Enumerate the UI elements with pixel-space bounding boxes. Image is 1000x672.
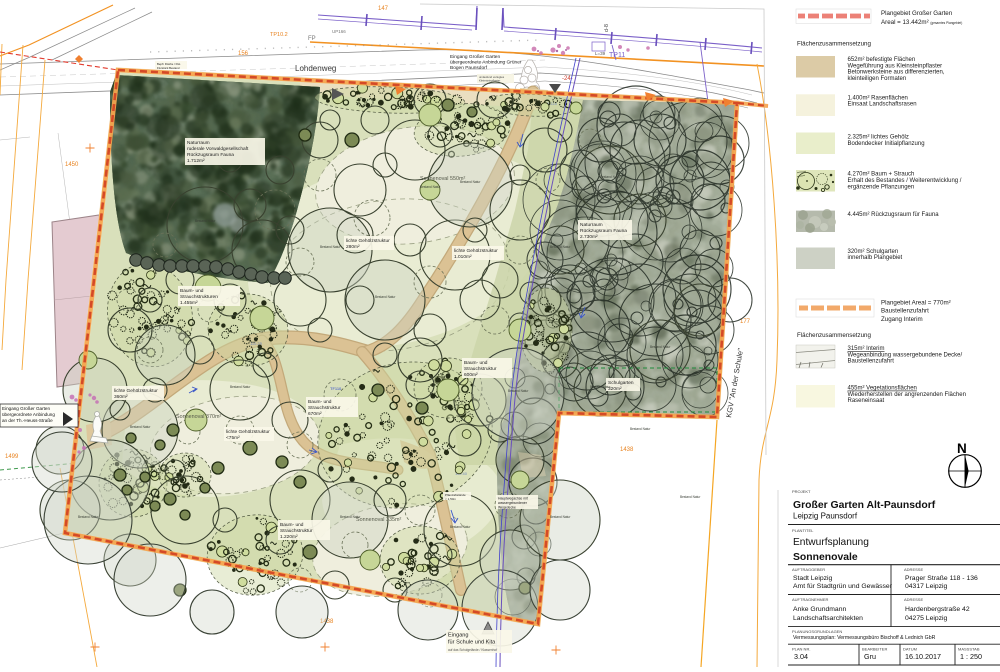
svg-text:Amt für Stadtgrün und Gewässer: Amt für Stadtgrün und Gewässer — [793, 583, 893, 590]
svg-text:UP166: UP166 — [332, 29, 346, 34]
svg-text:PLANTITEL: PLANTITEL — [792, 528, 814, 533]
svg-text:BEARBEITER: BEARBEITER — [862, 647, 887, 652]
svg-text:innerhalb Plangebiet: innerhalb Plangebiet — [848, 255, 903, 261]
svg-text:Bestand Natur: Bestand Natur — [320, 245, 341, 249]
svg-text:wassergebundener: wassergebundener — [498, 501, 528, 505]
svg-text:2.325m² lichtes Gehölz: 2.325m² lichtes Gehölz — [848, 135, 909, 141]
svg-text:Entwurfsplanung: Entwurfsplanung — [793, 537, 869, 548]
svg-text:Lohdenweg: Lohdenweg — [295, 64, 336, 73]
svg-text:Eingang Großer Garten: Eingang Großer Garten — [2, 406, 50, 411]
svg-text:TP11: TP11 — [609, 52, 625, 59]
svg-text:4.270m² Baum + Strauch: 4.270m² Baum + Strauch — [848, 172, 915, 178]
svg-text:Großer Garten Alt-Paunsdorf: Großer Garten Alt-Paunsdorf — [793, 500, 936, 511]
svg-text:Einsaat Landschaftsrasen: Einsaat Landschaftsrasen — [848, 102, 917, 108]
svg-text:Bestand Natur: Bestand Natur — [680, 495, 701, 499]
svg-text:Eingang: Eingang — [448, 633, 469, 639]
svg-text:Vermessungsplan: Vermessungsbü: Vermessungsplan: Vermessungsbüro Bischof… — [793, 635, 936, 641]
svg-text:Sonnenoval 550m²: Sonnenoval 550m² — [420, 176, 465, 182]
svg-text:652m² befestigte Flächen: 652m² befestigte Flächen — [848, 57, 916, 63]
svg-text:< 1,50m: < 1,50m — [445, 497, 456, 501]
svg-text:360m²: 360m² — [114, 394, 128, 400]
svg-text:Areal = 13.442m² (gesamtes Pla: Areal = 13.442m² (gesamtes Plangebiet) — [881, 19, 962, 26]
svg-text:156: 156 — [238, 51, 249, 57]
svg-text:FP: FP — [308, 36, 316, 42]
svg-text:TP10.2: TP10.2 — [270, 32, 288, 38]
svg-text:lichte Gehölzstruktur: lichte Gehölzstruktur — [226, 429, 270, 435]
svg-text:Naturraum: Naturraum — [580, 222, 603, 228]
svg-text:Bodendecker Initialpflanzung: Bodendecker Initialpflanzung — [848, 141, 925, 147]
svg-text:übergeordnete Anbindung: übergeordnete Anbindung — [2, 412, 55, 417]
svg-text:Baustellenzufahrt: Baustellenzufahrt — [848, 359, 895, 365]
svg-text:1 : 250: 1 : 250 — [960, 652, 982, 661]
svg-text:Bestand Natur: Bestand Natur — [450, 525, 471, 529]
svg-text:Eingang Großer Garten: Eingang Großer Garten — [450, 54, 500, 60]
svg-text:600m²: 600m² — [464, 372, 478, 378]
svg-text:PLANUNGSGRUNDLAGEN: PLANUNGSGRUNDLAGEN — [792, 629, 842, 634]
svg-text:Gru: Gru — [864, 652, 876, 661]
svg-text:PLAN NR.: PLAN NR. — [792, 647, 810, 652]
svg-text:1.455m²: 1.455m² — [180, 300, 198, 306]
svg-text:ADRESSE: ADRESSE — [904, 567, 923, 572]
svg-text:Strauchstruktur: Strauchstruktur — [464, 366, 497, 372]
svg-text:Raseneinsaat: Raseneinsaat — [848, 398, 885, 404]
svg-text:an der Th.-Heuss-Straße: an der Th.-Heuss-Straße — [2, 418, 53, 423]
svg-text:<75m²: <75m² — [226, 435, 240, 441]
svg-text:1438: 1438 — [620, 447, 634, 453]
svg-text:Wegeführung aus Kleinsteinpfla: Wegeführung aus Kleinsteinpflaster — [848, 63, 943, 69]
svg-text:Wiederherstellen der angrenzen: Wiederherstellen der angrenzenden Fläche… — [848, 392, 966, 398]
svg-text:2.730m²: 2.730m² — [580, 234, 598, 240]
svg-text:1.400m² Rasenflächen: 1.400m² Rasenflächen — [848, 95, 908, 101]
svg-text:Bestand Natur: Bestand Natur — [420, 185, 441, 189]
svg-text:kleinteiligen Formaten: kleinteiligen Formaten — [848, 76, 907, 82]
svg-text:lichte Gehölzstruktur: lichte Gehölzstruktur — [454, 248, 498, 254]
svg-text:1.712m²: 1.712m² — [187, 158, 205, 164]
svg-text:Betonwerksteine aus differenzi: Betonwerksteine aus differenzierten, — [848, 70, 945, 76]
svg-text:AUFTRAGNEHMER: AUFTRAGNEHMER — [792, 597, 829, 602]
svg-text:Baustellenzufahrt: Baustellenzufahrt — [881, 308, 929, 315]
svg-text:Baum- und: Baum- und — [308, 399, 332, 405]
svg-text:04317 Leipzig: 04317 Leipzig — [905, 583, 948, 590]
svg-text:04275 Leipzig: 04275 Leipzig — [905, 615, 948, 622]
svg-text:4.445m² Rückzugsraum für Fauna: 4.445m² Rückzugsraum für Fauna — [848, 212, 940, 218]
svg-text:Bestand Natur: Bestand Natur — [508, 389, 529, 393]
svg-text:Naturraum: Naturraum — [187, 140, 210, 146]
svg-text:Erhalt des Bestandes / Weitere: Erhalt des Bestandes / Weiterentwicklung… — [848, 178, 962, 184]
svg-text:1450: 1450 — [65, 162, 79, 168]
svg-text:455m² Vegetationsflächen: 455m² Vegetationsflächen — [848, 386, 917, 392]
svg-text:Bestand Natur: Bestand Natur — [590, 385, 611, 389]
svg-text:Bestand Natur: Bestand Natur — [230, 385, 251, 389]
svg-text:ergänzende Pflanzungen: ergänzende Pflanzungen — [848, 184, 915, 190]
svg-text:Hauptwegachse mit: Hauptwegachse mit — [498, 496, 528, 500]
svg-text:N: N — [957, 441, 967, 456]
svg-text:auf das Schulgelände / Klassen: auf das Schulgelände / Klassenhof — [448, 648, 497, 652]
svg-text:für Schule und Kita: für Schule und Kita — [448, 639, 496, 645]
svg-text:Sonnenovale: Sonnenovale — [793, 552, 858, 563]
svg-text:Bestand Natur: Bestand Natur — [195, 219, 216, 223]
svg-text:Wegeanbindung wassergebundene: Wegeanbindung wassergebundene Decke/ — [848, 352, 963, 358]
svg-text:Rückzugsraum Fauna: Rückzugsraum Fauna — [580, 228, 627, 234]
svg-text:Plangebiet Areal = 770m²: Plangebiet Areal = 770m² — [881, 300, 951, 307]
svg-text:Landschaftsarchitekten: Landschaftsarchitekten — [793, 615, 863, 622]
svg-text:übergeordnete Anbindung Grüner: übergeordnete Anbindung Grüner — [450, 60, 522, 66]
svg-text:Bestand Natur: Bestand Natur — [630, 427, 651, 431]
svg-text:Zugang Interim: Zugang Interim — [881, 316, 923, 323]
svg-text:Baum- und: Baum- und — [180, 288, 204, 294]
svg-text:Anke Grundmann: Anke Grundmann — [793, 606, 846, 613]
svg-text:Sonnenoval 335m²: Sonnenoval 335m² — [356, 517, 401, 523]
svg-text:lichte Gehölzstruktur: lichte Gehölzstruktur — [346, 238, 390, 244]
svg-text:Strauchstrukturen: Strauchstrukturen — [180, 294, 218, 300]
svg-text:Strauchstruktur: Strauchstruktur — [308, 405, 341, 411]
svg-text:ADRESSE: ADRESSE — [904, 597, 923, 602]
svg-text:AUFTRAGGEBER: AUFTRAGGEBER — [792, 567, 825, 572]
svg-text:Bestand Natur: Bestand Natur — [375, 295, 396, 299]
svg-text:lichte Gehölzstruktur: lichte Gehölzstruktur — [114, 388, 158, 394]
svg-text:Leipzig Paunsdorf: Leipzig Paunsdorf — [793, 512, 858, 521]
svg-text:Strauchstruktur: Strauchstruktur — [280, 528, 313, 534]
svg-text:Bestand Natur: Bestand Natur — [78, 515, 99, 519]
svg-text:L=39: L=39 — [595, 51, 606, 56]
svg-text:PROJEKT: PROJEKT — [792, 489, 811, 494]
svg-text:Bestand Natur: Bestand Natur — [340, 515, 361, 519]
svg-text:Bestand Natur: Bestand Natur — [650, 345, 671, 349]
svg-text:d-8: d-8 — [604, 24, 610, 32]
svg-text:1.010m²: 1.010m² — [454, 254, 472, 260]
svg-text:670m²: 670m² — [308, 411, 322, 417]
svg-text:Schulgarten: Schulgarten — [608, 380, 634, 386]
svg-text:320m² Schulgarten: 320m² Schulgarten — [848, 249, 899, 255]
svg-text:Bestand Natur: Bestand Natur — [600, 175, 621, 179]
svg-text:Bestand Natur: Bestand Natur — [550, 245, 571, 249]
svg-text:Baum- und: Baum- und — [464, 360, 488, 366]
svg-text:1.220m²: 1.220m² — [280, 534, 298, 540]
svg-text:Wegedecke: Wegedecke — [498, 506, 516, 510]
svg-text:TF110: TF110 — [330, 386, 342, 391]
svg-text:3.04: 3.04 — [794, 652, 808, 661]
svg-text:280m²: 280m² — [346, 244, 360, 250]
svg-text:Rückzugsraum Fauna: Rückzugsraum Fauna — [187, 152, 234, 158]
svg-text:Prager Straße 118 - 136: Prager Straße 118 - 136 — [905, 575, 978, 582]
svg-text:315m² Interim: 315m² Interim — [848, 346, 885, 352]
svg-text:1499: 1499 — [5, 454, 19, 460]
svg-text:Bogen Paunsdorf: Bogen Paunsdorf — [450, 65, 488, 71]
svg-text:147: 147 — [378, 6, 389, 12]
svg-text:MASSSTAB: MASSSTAB — [958, 647, 980, 652]
svg-text:Hardenbergstraße 42: Hardenbergstraße 42 — [905, 606, 970, 613]
svg-text:Flächenzusammensetzung: Flächenzusammensetzung — [797, 41, 872, 48]
svg-text:Baum- und: Baum- und — [280, 522, 304, 528]
svg-text:Flurstück Bestand: Flurstück Bestand — [157, 66, 180, 70]
svg-text:Bestand Natur: Bestand Natur — [460, 180, 481, 184]
svg-text:Sonnenoval 370m²: Sonnenoval 370m² — [176, 414, 221, 420]
svg-text:Bestand Natur: Bestand Natur — [550, 515, 571, 519]
svg-text:Flächenzusammensetzung: Flächenzusammensetzung — [797, 332, 872, 339]
svg-text:ruderale Vorwaldgesellschaft: ruderale Vorwaldgesellschaft — [187, 146, 249, 152]
svg-text:Plangebiet Großer Garten: Plangebiet Großer Garten — [881, 10, 953, 17]
svg-text:177: 177 — [740, 319, 751, 325]
svg-text:Bestand Natur: Bestand Natur — [130, 425, 151, 429]
svg-text:DATUM: DATUM — [903, 647, 917, 652]
svg-text:16.10.2017: 16.10.2017 — [905, 652, 941, 661]
svg-text:Stadt Leipzig: Stadt Leipzig — [793, 575, 833, 582]
